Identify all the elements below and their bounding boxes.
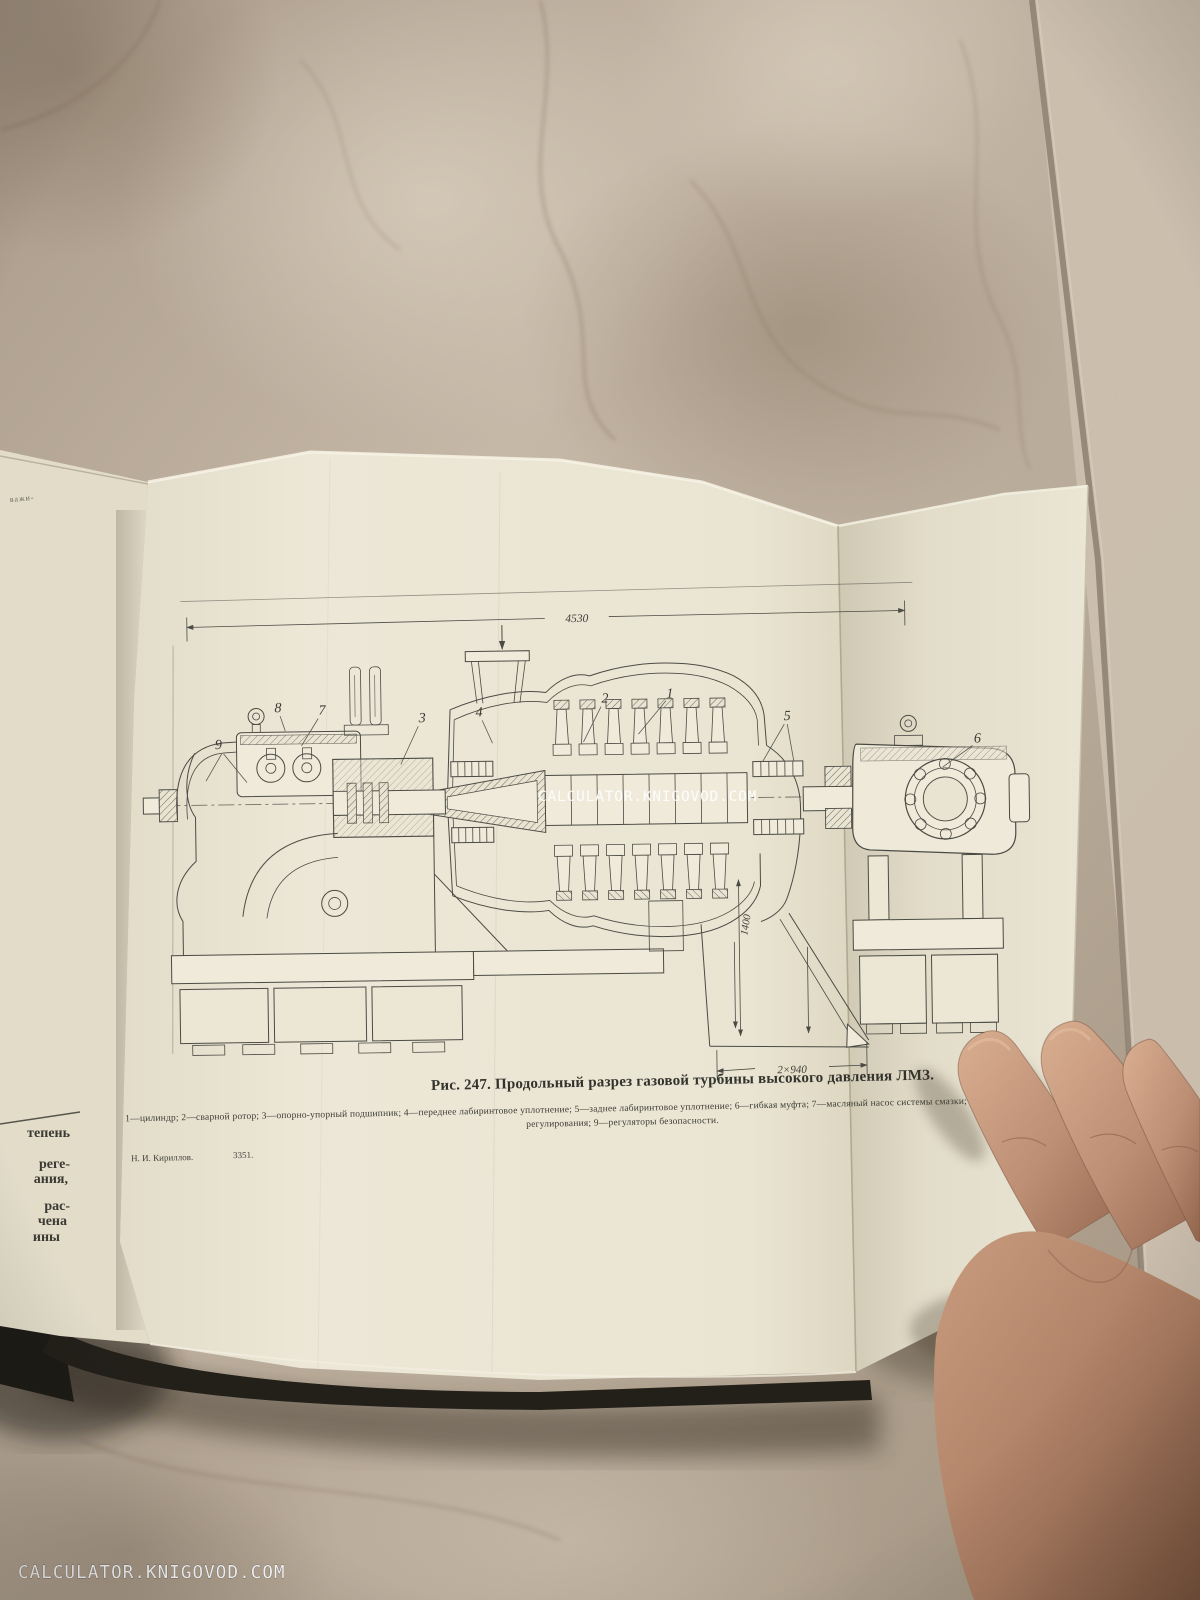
photo-of-open-book: тепень реге- ания, рас- чена ины важи- 4… — [0, 0, 1200, 1600]
palm — [934, 1231, 1200, 1600]
part-label-2: 2 — [601, 692, 608, 707]
part-label-4: 4 — [475, 705, 482, 720]
part-label-6: 6 — [974, 731, 981, 746]
left-page-fragment: ания, — [34, 1172, 68, 1187]
left-page-fragment: ины — [33, 1230, 60, 1245]
left-page-fragment: рас- — [44, 1199, 70, 1214]
part-label-9: 9 — [215, 738, 222, 753]
part-label-7: 7 — [318, 704, 326, 719]
part-label-5: 5 — [784, 709, 791, 724]
part-label-1: 1 — [666, 687, 673, 702]
part-label-8: 8 — [274, 701, 281, 716]
part-label-3: 3 — [418, 711, 426, 726]
watermark-center: CALCULATOR.KNIGOVOD.COM — [538, 789, 757, 805]
author-credit: Н. И. Кириллов. — [131, 1152, 193, 1163]
scene-svg: тепень реге- ания, рас- чена ины важи- 4… — [0, 0, 1200, 1600]
print-code: 3351. — [233, 1150, 253, 1160]
watermark-bottom-left: CALCULATOR.KNIGOVOD.COM — [18, 1563, 286, 1583]
flexible-coupling — [825, 766, 851, 786]
left-page-fragment: реге- — [39, 1157, 70, 1172]
left-page-fragment: тепень — [27, 1126, 70, 1141]
dimension-4530-label: 4530 — [565, 613, 588, 625]
left-page-fragment: чена — [38, 1214, 67, 1229]
